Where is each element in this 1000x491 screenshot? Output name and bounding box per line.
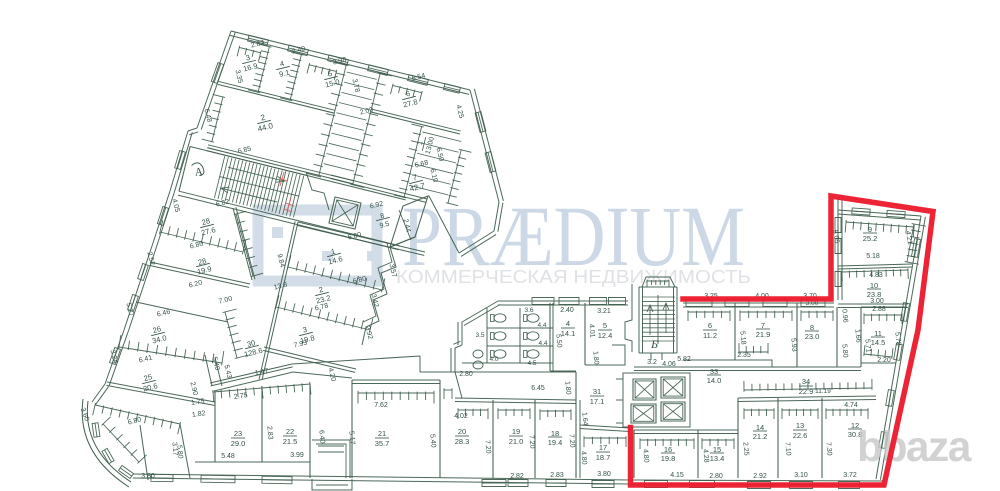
svg-text:21: 21: [378, 429, 386, 438]
svg-text:11.2: 11.2: [703, 331, 717, 340]
svg-text:29.0: 29.0: [231, 439, 246, 448]
svg-text:7.62: 7.62: [374, 402, 388, 409]
svg-text:13.4: 13.4: [710, 454, 725, 463]
svg-text:31: 31: [593, 387, 601, 396]
svg-text:34: 34: [802, 377, 810, 386]
svg-text:5.50: 5.50: [554, 334, 562, 348]
svg-text:5.40: 5.40: [428, 434, 436, 448]
svg-text:2.82: 2.82: [510, 473, 524, 480]
svg-text:35.7: 35.7: [375, 439, 390, 448]
svg-text:4.74: 4.74: [844, 402, 858, 409]
svg-text:23.8: 23.8: [867, 290, 882, 299]
svg-text:2.25: 2.25: [741, 442, 749, 456]
svg-text:17: 17: [599, 443, 607, 452]
svg-text:21.9: 21.9: [756, 330, 771, 339]
svg-text:5.18: 5.18: [738, 331, 746, 345]
svg-text:7.30: 7.30: [824, 442, 832, 456]
svg-text:3.21: 3.21: [597, 308, 611, 315]
svg-text:1.80: 1.80: [563, 381, 571, 395]
svg-text:4.83: 4.83: [869, 272, 883, 279]
svg-text:4.15: 4.15: [670, 472, 684, 479]
svg-text:21.5: 21.5: [283, 437, 298, 446]
svg-text:3.10: 3.10: [794, 472, 808, 479]
svg-text:17.1: 17.1: [590, 397, 605, 406]
svg-text:3.5: 3.5: [475, 332, 484, 339]
svg-text:2.80: 2.80: [459, 371, 473, 378]
svg-text:21.2: 21.2: [753, 432, 768, 441]
svg-text:1.64: 1.64: [580, 412, 588, 426]
svg-text:28.3: 28.3: [455, 437, 470, 446]
svg-text:22: 22: [286, 427, 294, 436]
svg-text:5.48: 5.48: [221, 453, 235, 460]
svg-text:22.9: 22.9: [799, 387, 814, 396]
svg-text:23: 23: [234, 429, 242, 438]
svg-text:3.17: 3.17: [170, 442, 178, 456]
svg-text:5: 5: [603, 321, 607, 330]
svg-text:5.17: 5.17: [347, 431, 355, 445]
svg-text:22.6: 22.6: [793, 431, 808, 440]
svg-text:4.4: 4.4: [538, 340, 547, 347]
svg-text:21.0: 21.0: [509, 437, 524, 446]
svg-text:5.80: 5.80: [840, 344, 848, 358]
svg-text:5.78: 5.78: [893, 332, 901, 346]
svg-text:6.45: 6.45: [531, 385, 545, 392]
svg-text:13: 13: [796, 421, 804, 430]
svg-text:1.66: 1.66: [853, 329, 861, 343]
svg-text:4.4: 4.4: [537, 322, 546, 329]
svg-text:4.80: 4.80: [641, 449, 649, 463]
svg-text:19: 19: [512, 427, 520, 436]
svg-text:5.93: 5.93: [789, 338, 797, 352]
svg-text:14.5: 14.5: [871, 338, 886, 347]
svg-text:3.2: 3.2: [647, 359, 657, 366]
svg-text:4.0: 4.0: [489, 356, 498, 363]
svg-text:2.92: 2.92: [753, 473, 767, 480]
svg-text:4.5: 4.5: [527, 360, 536, 367]
svg-text:2.20: 2.20: [877, 357, 891, 364]
svg-text:1.80: 1.80: [591, 351, 599, 365]
svg-text:2.83: 2.83: [265, 426, 273, 440]
svg-text:19.4: 19.4: [548, 438, 563, 447]
svg-text:2.40: 2.40: [560, 307, 574, 314]
svg-text:7.10: 7.10: [783, 442, 791, 456]
svg-text:4: 4: [566, 319, 570, 328]
svg-text:18.7: 18.7: [596, 453, 611, 462]
svg-text:4.28: 4.28: [701, 449, 709, 463]
svg-text:4.02: 4.02: [454, 413, 468, 420]
svg-text:bbaza: bbaza: [857, 424, 972, 471]
svg-text:6: 6: [708, 321, 712, 330]
svg-text:КОММЕРЧЕСКАЯ НЕДВИЖИМОСТЬ: КОММЕРЧЕСКАЯ НЕДВИЖИМОСТЬ: [396, 266, 751, 287]
svg-text:2.35: 2.35: [737, 352, 751, 359]
svg-text:7.20: 7.20: [483, 440, 491, 454]
svg-text:5.18: 5.18: [866, 253, 880, 260]
svg-text:23.0: 23.0: [805, 332, 820, 341]
svg-text:6.40: 6.40: [317, 430, 325, 444]
svg-text:3.72: 3.72: [843, 472, 857, 479]
svg-text:3.80: 3.80: [141, 473, 155, 480]
svg-text:19.8: 19.8: [661, 454, 676, 463]
svg-text:4.01: 4.01: [587, 324, 595, 338]
svg-text:5.82: 5.82: [677, 356, 691, 363]
svg-text:4.80: 4.80: [579, 451, 587, 465]
svg-text:20: 20: [458, 427, 466, 436]
svg-text:2.80: 2.80: [709, 473, 723, 480]
svg-text:4.06: 4.06: [662, 361, 676, 368]
svg-text:3.00: 3.00: [870, 298, 884, 305]
svg-text:2.88: 2.88: [872, 306, 886, 313]
svg-text:12.4: 12.4: [598, 331, 613, 340]
svg-text:3.99: 3.99: [290, 452, 304, 459]
svg-text:Б: Б: [650, 337, 658, 351]
svg-text:3.6: 3.6: [524, 307, 533, 314]
svg-text:2.83: 2.83: [550, 472, 564, 479]
svg-text:0.96: 0.96: [840, 309, 848, 323]
svg-text:3.80: 3.80: [597, 471, 611, 478]
svg-text:11.19: 11.19: [815, 388, 831, 395]
svg-text:14.1: 14.1: [561, 329, 576, 338]
svg-text:25.2: 25.2: [863, 234, 878, 243]
svg-text:14.0: 14.0: [707, 376, 722, 385]
svg-text:7.20: 7.20: [527, 435, 535, 449]
svg-text:7.20: 7.20: [567, 434, 575, 448]
